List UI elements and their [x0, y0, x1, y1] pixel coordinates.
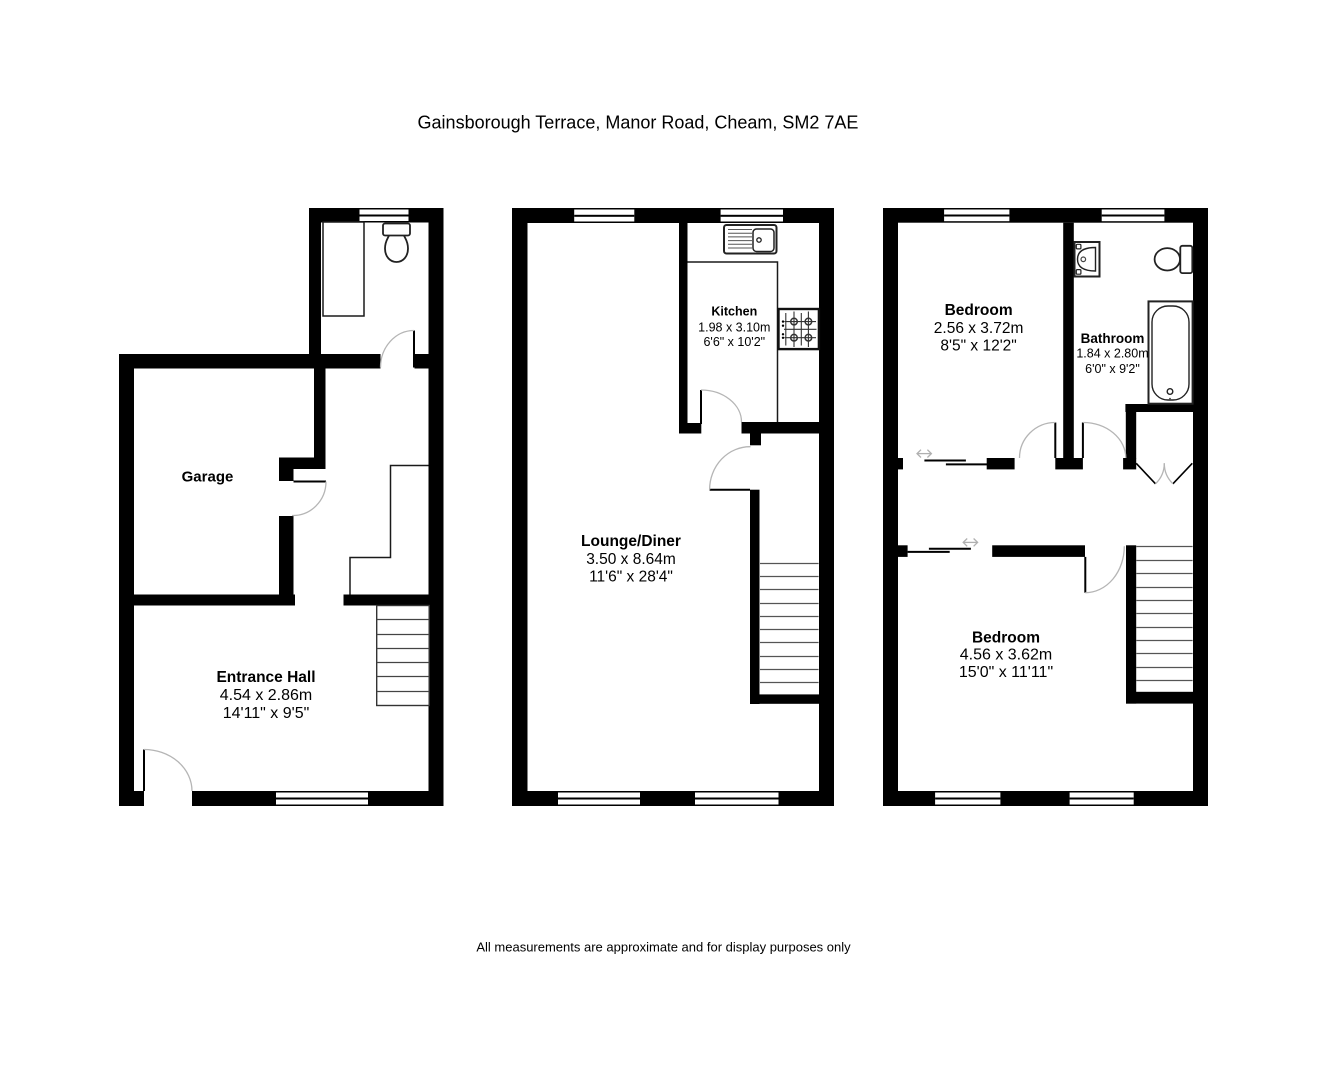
- svg-text:14'11" x 9'5": 14'11" x 9'5": [223, 705, 310, 722]
- svg-text:All measurements are approxima: All measurements are approximate and for…: [476, 940, 851, 955]
- svg-text:8'5" x 12'2": 8'5" x 12'2": [940, 338, 1016, 355]
- svg-text:Bedroom: Bedroom: [972, 629, 1040, 646]
- svg-text:4.54 x 2.86m: 4.54 x 2.86m: [220, 687, 313, 704]
- svg-text:Entrance Hall: Entrance Hall: [216, 669, 315, 686]
- svg-text:Garage: Garage: [182, 468, 234, 485]
- svg-text:Bathroom: Bathroom: [1081, 331, 1145, 346]
- svg-text:2.56 x 3.72m: 2.56 x 3.72m: [934, 320, 1024, 337]
- svg-text:4.56 x 3.62m: 4.56 x 3.62m: [960, 647, 1053, 664]
- svg-text:Bedroom: Bedroom: [945, 302, 1013, 319]
- svg-text:6'0" x 9'2": 6'0" x 9'2": [1085, 362, 1140, 376]
- svg-text:15'0" x 11'11": 15'0" x 11'11": [959, 664, 1053, 681]
- svg-text:11'6" x 28'4": 11'6" x 28'4": [589, 569, 673, 586]
- svg-text:Lounge/Diner: Lounge/Diner: [581, 533, 681, 550]
- svg-text:6'6" x 10'2": 6'6" x 10'2": [703, 335, 765, 349]
- svg-text:1.84 x 2.80m: 1.84 x 2.80m: [1076, 347, 1148, 361]
- svg-text:1.98 x 3.10m: 1.98 x 3.10m: [698, 321, 770, 335]
- svg-text:Gainsborough Terrace, Manor Ro: Gainsborough Terrace, Manor Road, Cheam,…: [418, 113, 859, 133]
- svg-text:3.50 x 8.64m: 3.50 x 8.64m: [586, 551, 676, 568]
- svg-text:Kitchen: Kitchen: [711, 304, 757, 318]
